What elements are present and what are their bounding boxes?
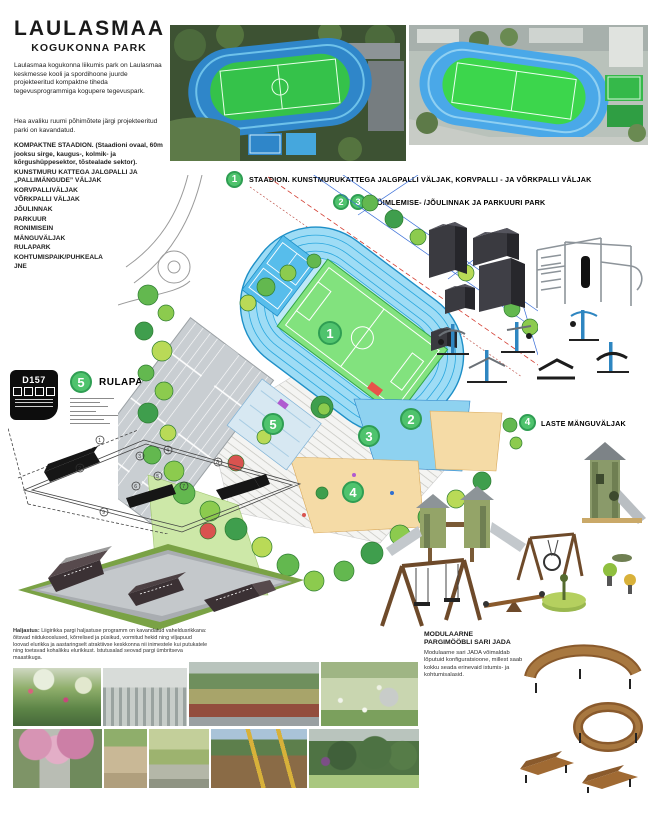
stadium-render-2-graphic (409, 25, 648, 145)
fitness-machines (437, 310, 629, 382)
svg-text:8: 8 (216, 460, 219, 466)
planting-note-heading: Haljastus: (13, 628, 40, 634)
stadium-render-2 (409, 25, 648, 145)
furniture-note: MODULAARNE PARGIMÖÖBLI SARI JADA Modulaa… (424, 631, 524, 680)
furniture-renders (516, 635, 648, 795)
ring-bench (578, 707, 638, 747)
furniture-graphic (516, 635, 648, 795)
spring-riders (603, 554, 636, 594)
svg-text:6: 6 (134, 484, 137, 490)
photo-meadow-flowers (13, 668, 101, 726)
seesaw (483, 591, 545, 612)
gym-equipment-graphic (415, 212, 650, 387)
planting-note: Haljastus: Liigirikka pargi haljastuse p… (13, 628, 209, 662)
furniture-body: Modulaarne sari JADA võimaldab lõputuid … (424, 650, 524, 680)
stamp-icon-4 (46, 387, 55, 396)
lounger-1 (520, 751, 574, 783)
photo-shrub-border (309, 729, 419, 788)
lounger-2 (582, 765, 638, 793)
furniture-title-1: MODULAARNE (424, 631, 524, 639)
playground-renders (368, 430, 650, 635)
stamp-icon-2 (24, 387, 33, 396)
plan-badge-2: 2 (400, 408, 422, 430)
stadium-render-1-graphic (170, 25, 406, 161)
stamp-rule (15, 399, 53, 400)
gym-equipment-renders (415, 212, 650, 387)
plan-badge-2-number: 2 (407, 412, 414, 427)
presentation-board: LAULASMAA KOGUKONNA PARK Laulasmaa koguk… (0, 0, 650, 815)
skatepark-drawing-graphic: 1 2 3 4 5 6 7 8 9 (8, 428, 308, 534)
section-5-badge: 5 (70, 371, 92, 393)
svg-text:7: 7 (182, 484, 185, 490)
page-title: LAULASMAA (14, 18, 164, 39)
photo-bench-meadow (321, 662, 418, 726)
svg-text:1: 1 (98, 438, 101, 444)
curved-bench (530, 650, 636, 693)
plan-badge-4: 4 (342, 481, 364, 503)
facility-item: KOMPAKTNE STAADION. (Staadioni ovaal, 60… (14, 142, 166, 168)
swing-set-2 (518, 534, 582, 580)
project-stamp: D157 (10, 370, 58, 420)
svg-text:2: 2 (78, 466, 81, 472)
skatepark-render-graphic (8, 538, 308, 633)
plan-badge-4-number: 4 (349, 485, 356, 500)
svg-text:9: 9 (102, 510, 105, 516)
intro-paragraph-1: Laulasmaa kogukonna liikumis park on Lau… (14, 62, 166, 97)
photo-street-planting (189, 662, 319, 726)
svg-text:3: 3 (138, 454, 141, 460)
plan-badge-1-number: 1 (326, 326, 333, 341)
skatepark-render (8, 538, 308, 633)
punching-bag (581, 256, 590, 288)
climbing-tower (582, 442, 646, 524)
photo-park-path-building (103, 668, 187, 726)
intro-paragraph-2: Hea avaliku ruumi põhimõtete järgi proje… (14, 118, 166, 135)
photo-playground-hammock (211, 729, 307, 788)
page-subtitle: KOGUKONNA PARK (14, 42, 164, 54)
stadium-render-1 (170, 25, 406, 161)
section-5-number: 5 (77, 375, 84, 390)
furniture-title-2: PARGIMÖÖBLI SARI JADA (424, 639, 524, 647)
stamp-icon-1 (13, 387, 22, 396)
photo-cherry-blossom-path (13, 729, 102, 788)
carousel (542, 574, 586, 612)
access-roads (118, 175, 202, 305)
svg-text:5: 5 (156, 474, 159, 480)
photo-gravel-garden (104, 729, 147, 788)
parkour-blocks (429, 222, 525, 351)
playground-graphic (368, 430, 650, 635)
swing-set (382, 560, 480, 626)
drawing-callouts: 1 2 3 4 5 6 7 8 9 (76, 436, 222, 516)
stamp-rule (15, 402, 53, 403)
photo-autumn-path (149, 729, 209, 788)
play-structure (386, 486, 526, 562)
stamp-icon-3 (35, 387, 44, 396)
stamp-icons (10, 387, 58, 396)
planting-note-body: Liigirikka pargi haljastuse programm on … (13, 628, 207, 661)
section-4-title: LASTE MÄNGUVÄLJAK (541, 419, 646, 428)
stamp-rule (15, 406, 53, 407)
svg-text:4: 4 (166, 448, 169, 454)
skatepark-drawing: 1 2 3 4 5 6 7 8 9 (8, 428, 308, 534)
stamp-code: D157 (10, 375, 58, 385)
plan-badge-1: 1 (318, 321, 342, 345)
